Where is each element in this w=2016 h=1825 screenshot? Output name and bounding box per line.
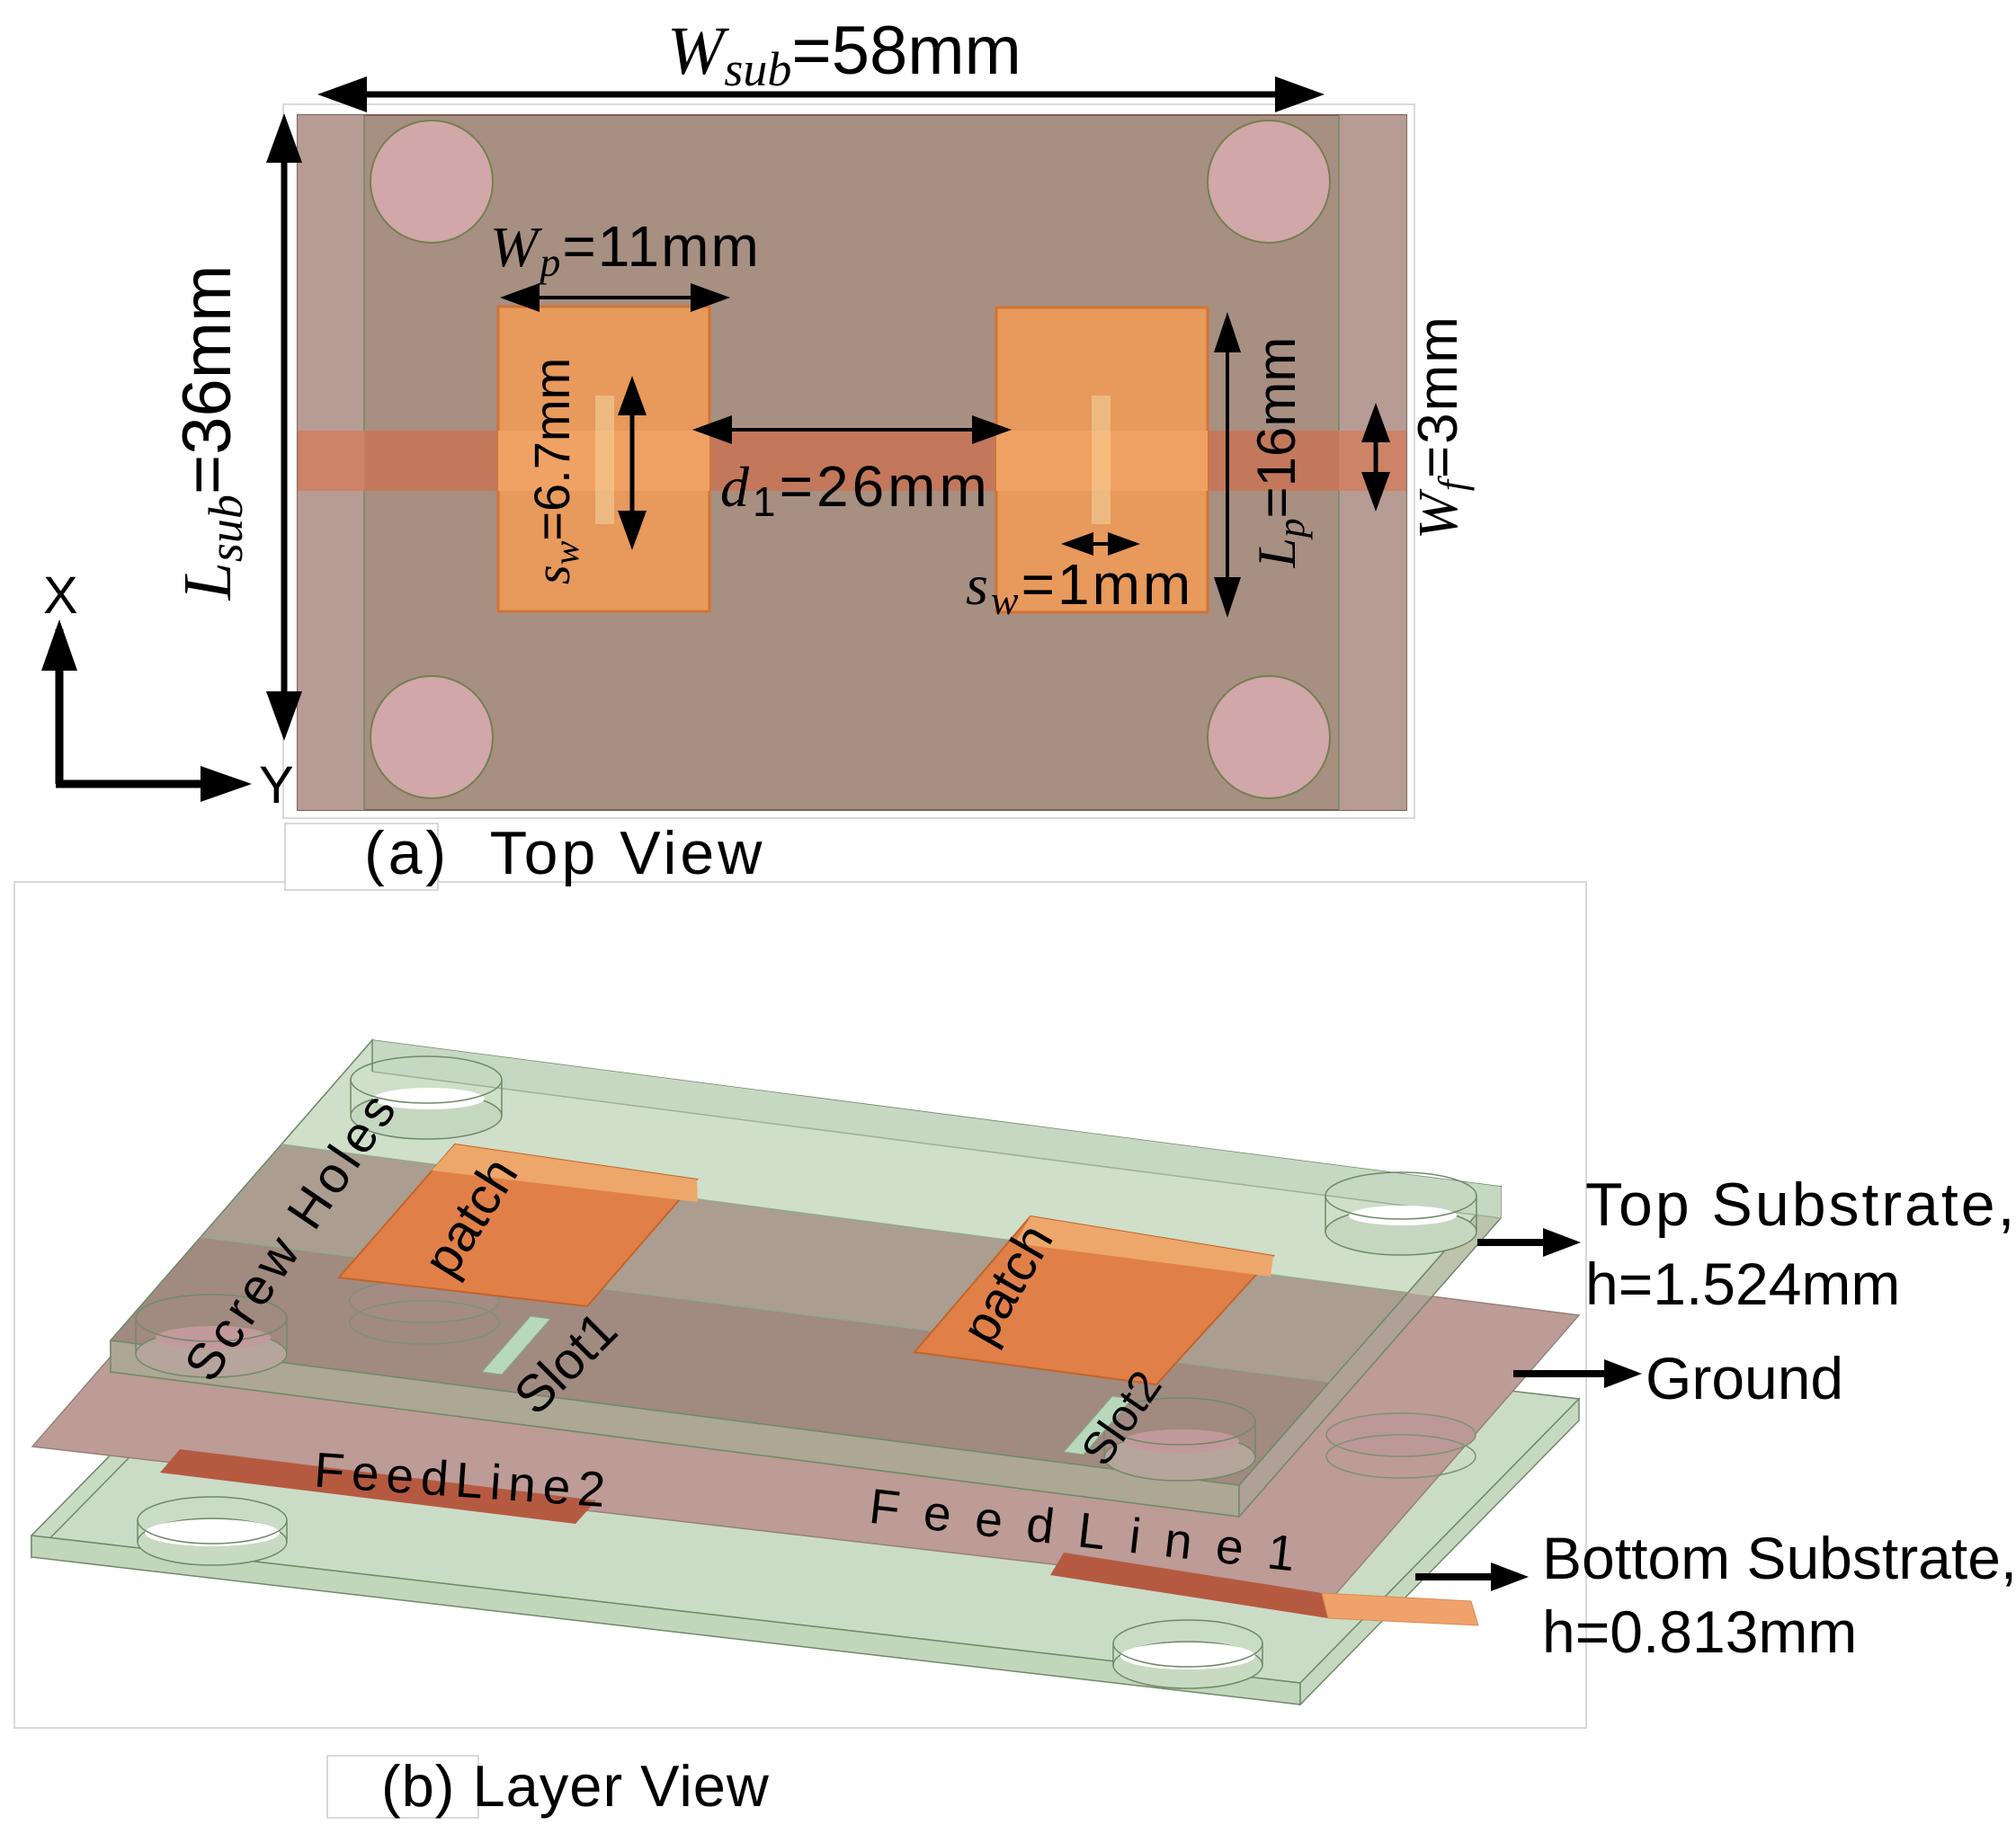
svg-text:Wp=11mm: Wp=11mm: [490, 214, 761, 285]
svg-text:h=1.524mm: h=1.524mm: [1585, 1251, 1900, 1317]
svg-text:(a) Top View: (a) Top View: [364, 819, 765, 887]
svg-text:h=0.813mm: h=0.813mm: [1542, 1598, 1857, 1665]
svg-text:X: X: [43, 566, 78, 625]
svg-text:Wf=3mm: Wf=3mm: [1407, 315, 1475, 539]
svg-text:Bottom Substrate,: Bottom Substrate,: [1542, 1525, 2016, 1591]
svg-text:Ground: Ground: [1646, 1345, 1843, 1411]
svg-text:Top Substrate,: Top Substrate,: [1585, 1171, 2016, 1239]
svg-text:Wsub=58mm: Wsub=58mm: [667, 13, 1021, 96]
svg-text:(b) Layer View: (b) Layer View: [381, 1753, 770, 1819]
svg-text:Y: Y: [259, 756, 294, 815]
